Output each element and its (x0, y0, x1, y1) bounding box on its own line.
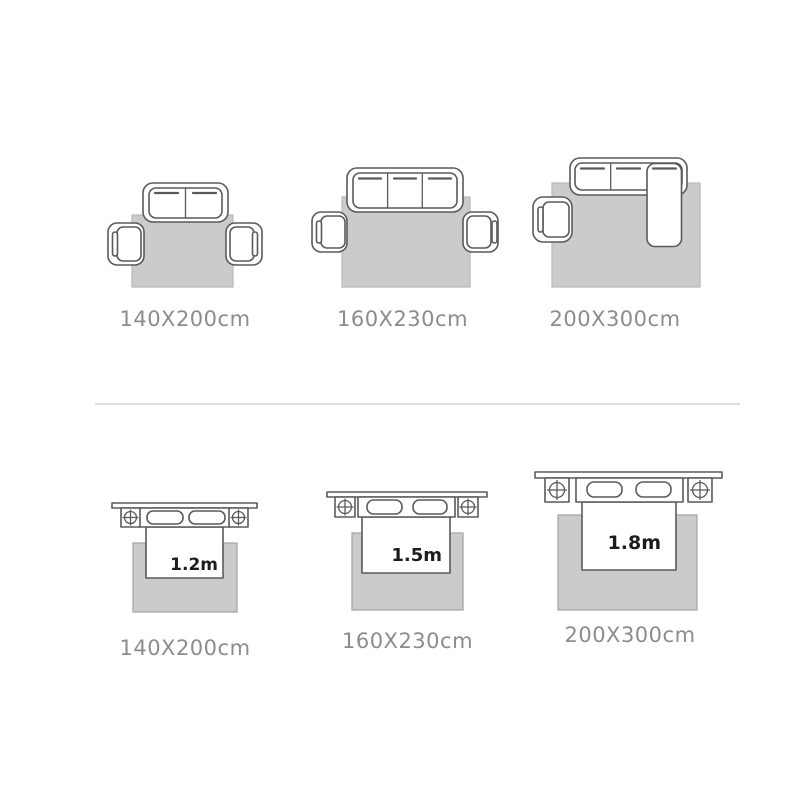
rug-size-label: 200X300cm (525, 307, 705, 331)
nightstand-left-icon (545, 478, 569, 502)
bed-diagram-large: 1.8m (530, 465, 730, 615)
pillow-left (367, 500, 402, 514)
rug-size-label: 140X200cm (105, 307, 265, 331)
rug-size-label: 140X200cm (105, 636, 265, 660)
rug-size-label: 200X300cm (530, 623, 730, 647)
nightstand-right-icon (688, 478, 712, 502)
rug-rect (132, 215, 233, 287)
rug-size-label: 160X230cm (320, 629, 495, 653)
sofa-diagram-large (525, 150, 705, 295)
pillow-left (147, 511, 183, 524)
armchair-left-icon (108, 223, 144, 265)
bed-width-text: 1.8m (608, 532, 661, 554)
nightstand-left-icon (121, 508, 140, 527)
pillow-right (189, 511, 225, 524)
armchair-right-icon (463, 212, 498, 252)
sofa-figure-medium: 160X230cm (305, 160, 500, 331)
bed-width-text: 1.5m (391, 545, 442, 566)
nightstand-right-icon (229, 508, 248, 527)
sofa-3seat-icon (347, 168, 463, 212)
pillow-right (413, 500, 447, 514)
sofa-2seat-icon (143, 183, 228, 222)
sofa-figure-small: 140X200cm (105, 165, 265, 331)
bed-width-text: 1.2m (170, 555, 218, 575)
bed-figure-large: 1.8m 200X300cm (530, 465, 730, 647)
chaise-lounge (647, 164, 682, 247)
section-divider (95, 403, 740, 405)
pillow-left (587, 482, 622, 497)
rug-size-guide: 140X200cm (0, 0, 800, 800)
bed-figure-medium: 1.5m 160X230cm (320, 485, 495, 653)
bed-figure-small: 1.2m 140X200cm (105, 495, 265, 660)
sofa-figure-large: 200X300cm (525, 150, 705, 331)
sofa-diagram-medium (305, 160, 500, 295)
armchair-right-icon (226, 223, 262, 265)
bed-diagram-medium: 1.5m (320, 485, 495, 618)
bed-diagram-small: 1.2m (105, 495, 265, 620)
sofa-diagram-small (105, 165, 265, 295)
pillow-right (636, 482, 671, 497)
armchair-left-icon (533, 197, 572, 242)
nightstand-right-icon (458, 497, 478, 517)
armchair-left-icon (312, 212, 347, 252)
headboard-bar (535, 472, 722, 478)
rug-size-label: 160X230cm (305, 307, 500, 331)
nightstand-left-icon (335, 497, 355, 517)
